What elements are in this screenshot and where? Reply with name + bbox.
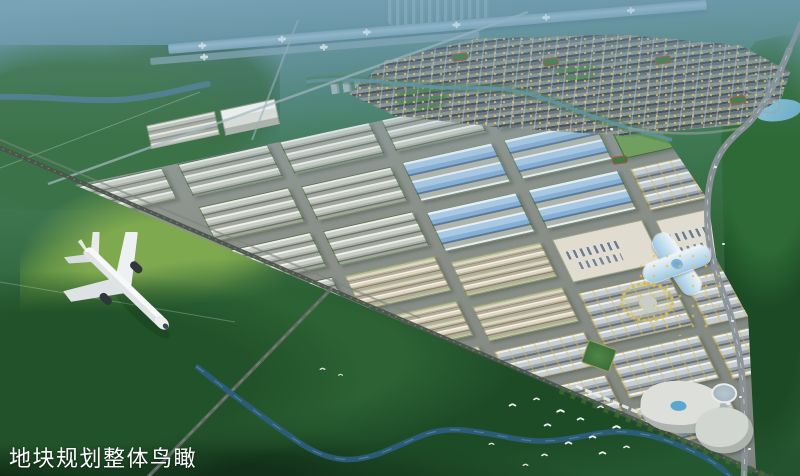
parked-aircraft-icon xyxy=(542,16,550,20)
vehicle-dot xyxy=(610,128,613,130)
parked-aircraft-icon xyxy=(200,55,208,59)
parked-aircraft-icon xyxy=(627,9,635,13)
airplane-icon xyxy=(48,232,208,350)
vehicle-dot xyxy=(739,396,742,398)
caption-text: 地块规划整体鸟瞰 xyxy=(9,441,197,473)
vehicle-dot xyxy=(731,320,734,322)
parked-aircraft-icon xyxy=(198,44,206,48)
vehicle-dot xyxy=(722,243,725,245)
parked-aircraft-icon xyxy=(452,23,460,27)
vehicle-dot xyxy=(714,166,717,168)
mall-complex xyxy=(638,373,760,459)
vehicle-dot xyxy=(748,448,751,450)
parked-aircraft-icon xyxy=(363,30,371,34)
parked-aircraft-icon xyxy=(278,37,286,41)
parked-aircraft-icon xyxy=(320,45,328,49)
aerial-rendering-canvas: 地块规划整体鸟瞰 xyxy=(0,0,800,476)
curved-building xyxy=(694,406,754,455)
